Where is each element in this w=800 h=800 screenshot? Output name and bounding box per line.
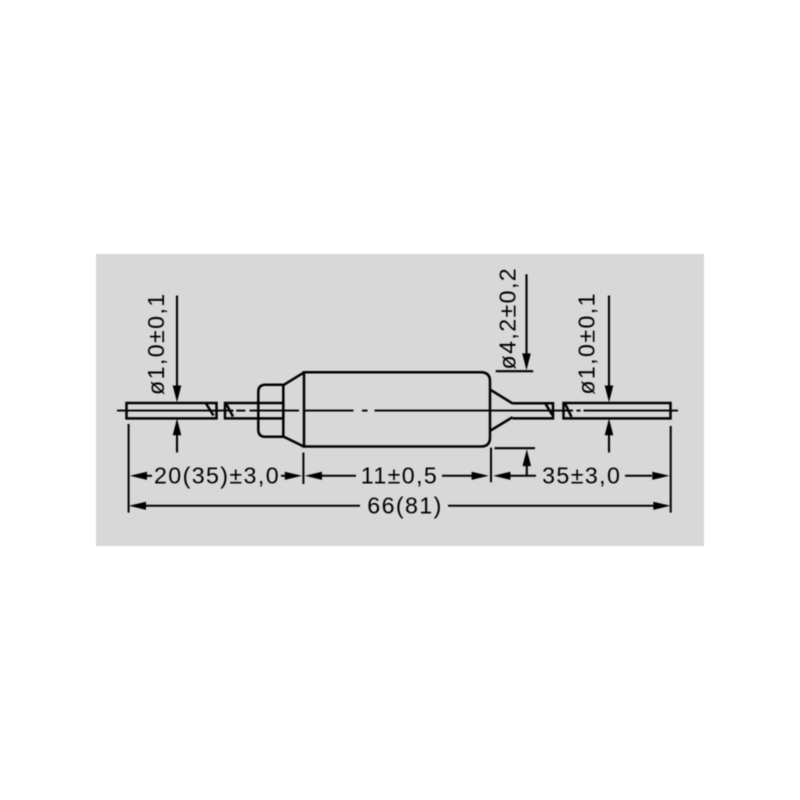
svg-text:ø4,2±0,2: ø4,2±0,2 (495, 267, 521, 370)
svg-text:20(35)±3,0: 20(35)±3,0 (154, 463, 280, 489)
svg-text:ø1,0±0,1: ø1,0±0,1 (573, 292, 599, 395)
svg-text:35±3,0: 35±3,0 (542, 463, 621, 489)
svg-text:11±0,5: 11±0,5 (361, 463, 438, 489)
svg-text:66(81): 66(81) (367, 493, 442, 519)
svg-text:ø1,0±0,1: ø1,0±0,1 (143, 292, 169, 395)
